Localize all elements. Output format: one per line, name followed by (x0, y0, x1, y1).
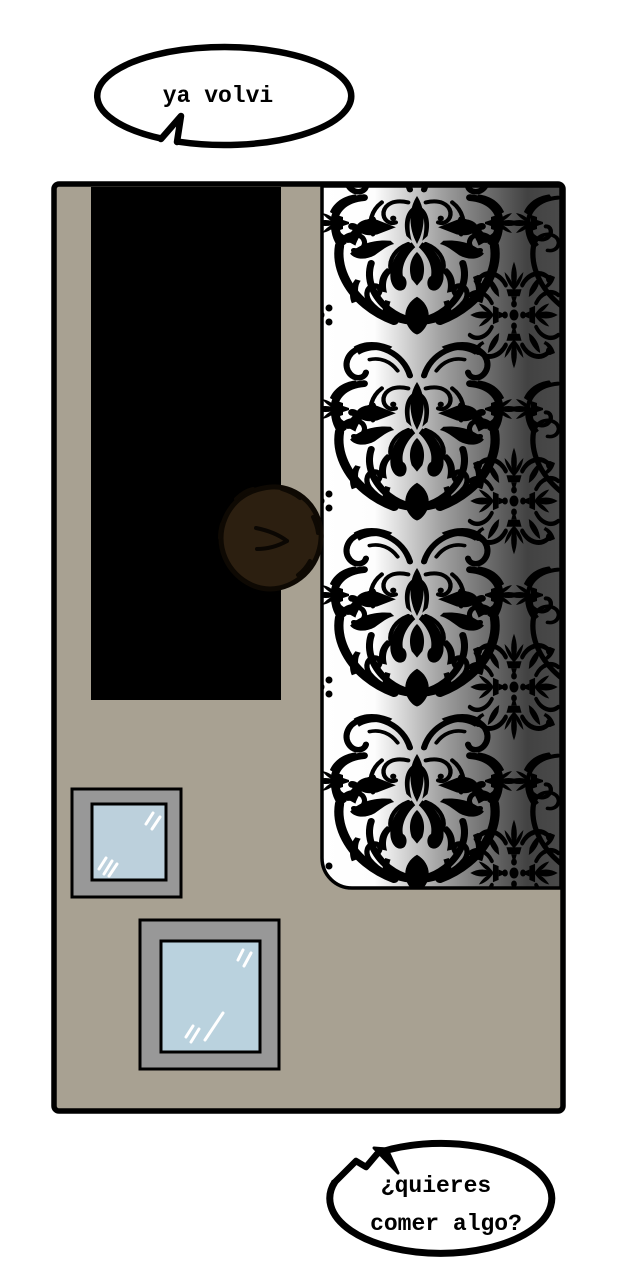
svg-text:ya volvi: ya volvi (163, 83, 273, 109)
svg-text:comer algo?: comer algo? (370, 1211, 522, 1237)
svg-text:¿quieres: ¿quieres (381, 1173, 491, 1199)
